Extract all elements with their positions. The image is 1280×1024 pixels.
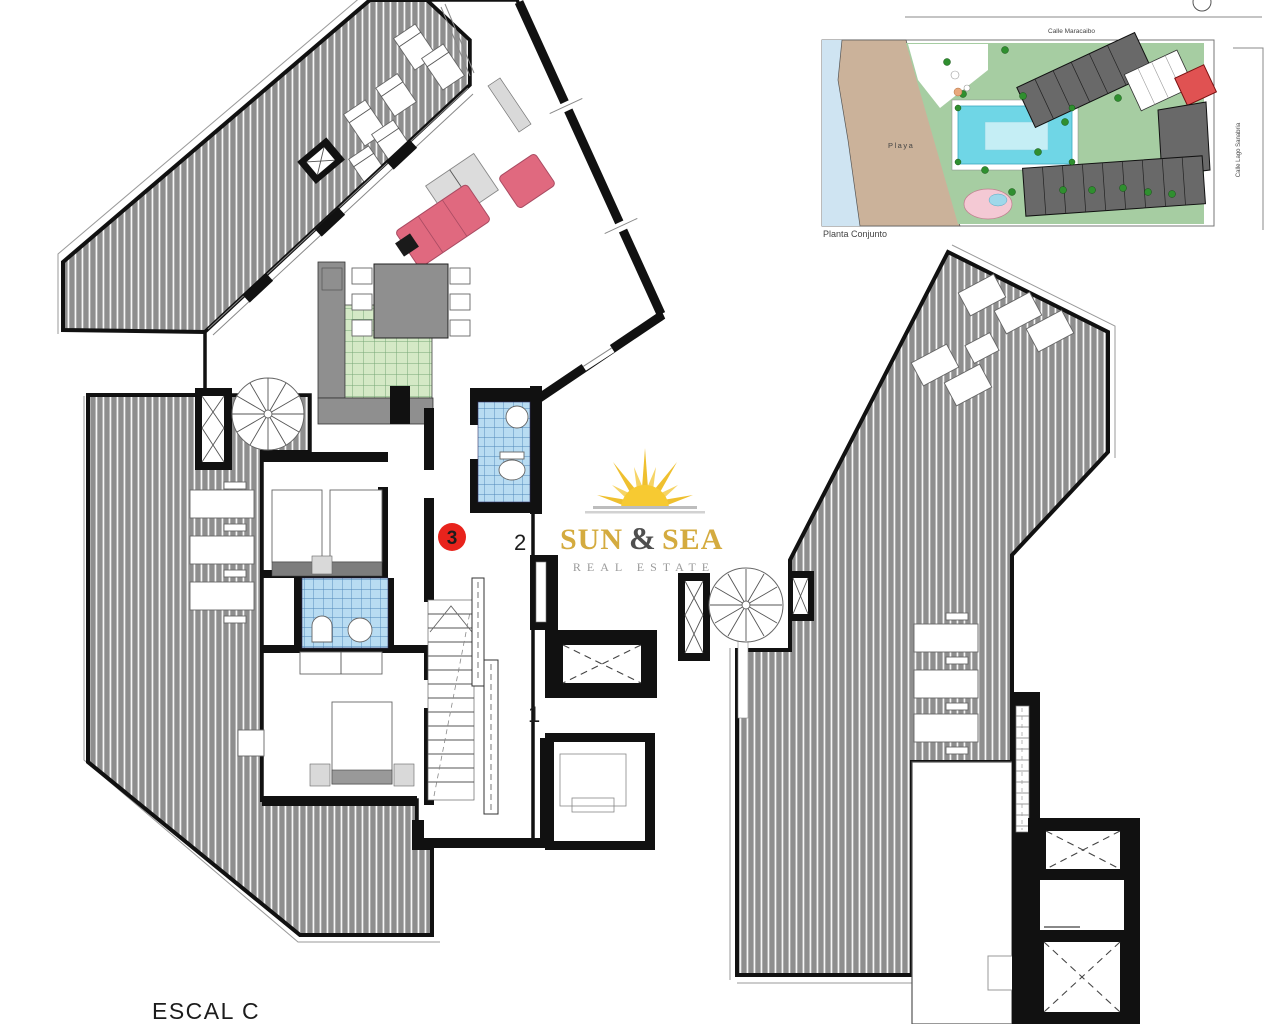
site-plan-caption: Planta Conjunto <box>823 229 887 239</box>
floor-plan-page: 3 2 1 <box>0 0 1280 1024</box>
logo-word-sea: SEA <box>662 523 723 556</box>
vent-box <box>788 571 814 621</box>
logo: SUN & SEA REAL ESTATE <box>560 448 723 574</box>
stair-caption: ESCAL C <box>152 998 260 1024</box>
dining-chair <box>450 320 470 336</box>
dining-chair <box>450 268 470 284</box>
nightstand <box>310 764 330 786</box>
bathroom-1 <box>470 386 542 514</box>
sunbed <box>914 714 978 742</box>
sunbed <box>914 670 978 698</box>
sun-icon <box>585 448 705 514</box>
machine-room <box>545 733 655 850</box>
nightstand <box>394 764 414 786</box>
bathroom-2 <box>302 578 388 648</box>
bed <box>330 490 382 562</box>
logo-word-sun: SUN <box>560 523 623 556</box>
compass-icon <box>1193 0 1211 11</box>
unit-3-badge: 3 <box>438 523 466 551</box>
dining-chair <box>352 320 372 336</box>
nightstand <box>312 556 332 574</box>
spiral-staircase <box>709 568 783 642</box>
beach-label: Playa <box>888 141 914 150</box>
kitchen-counter <box>318 398 433 424</box>
spiral-staircase <box>232 378 304 450</box>
elevator <box>1028 930 1140 1024</box>
left-apartment: 3 2 1 <box>58 0 663 942</box>
ladder-shaft <box>1016 706 1029 832</box>
dining-set <box>352 264 470 338</box>
dining-chair <box>352 294 372 310</box>
fountain <box>954 88 962 96</box>
dining-chair <box>352 268 372 284</box>
toilet <box>499 460 525 480</box>
bed <box>272 490 322 562</box>
toilet <box>312 616 332 642</box>
ac-unit <box>238 730 264 756</box>
dining-table <box>374 264 448 338</box>
dining-chair <box>450 294 470 310</box>
site-plan: Calle Maracaibo Playa Calle Lago Sanabri… <box>822 0 1263 239</box>
lobby-room <box>1040 880 1124 930</box>
sunbed <box>190 490 254 518</box>
sunbed <box>914 624 978 652</box>
zone-2-label: 2 <box>514 530 526 555</box>
floor-plan-drawing: 3 2 1 <box>0 0 1280 1024</box>
logo-tagline: REAL ESTATE <box>573 560 715 574</box>
zone-1-label: 1 <box>528 702 540 727</box>
elevator <box>545 630 657 698</box>
sink <box>348 618 372 642</box>
street-top-label: Calle Maracaibo <box>1048 28 1095 35</box>
sink <box>506 406 528 428</box>
left-terrace-sunbeds <box>190 482 254 623</box>
elevator <box>1028 818 1140 880</box>
vent-box <box>678 573 710 661</box>
right-terrace-sunbeds <box>914 613 978 754</box>
kids-pool <box>964 189 1012 219</box>
logo-ampersand: & <box>629 520 657 556</box>
sunbed <box>190 582 254 610</box>
vent-box <box>195 388 232 470</box>
street-right-label: Calle Lago Sanabria <box>1236 122 1242 177</box>
sunbed <box>190 536 254 564</box>
logo-wordmark: SUN & SEA REAL ESTATE <box>560 520 723 574</box>
unit-3-number: 3 <box>447 528 458 549</box>
